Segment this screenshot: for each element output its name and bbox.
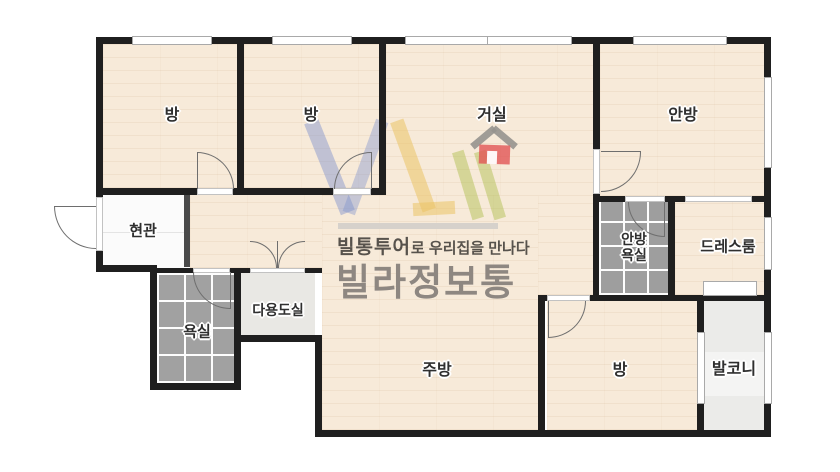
master-bedroom-label: 안방: [668, 107, 697, 125]
window-living: [405, 36, 572, 45]
utility-door-leaf: [277, 241, 278, 268]
front-door-arc: [54, 206, 96, 249]
logo-house-door: [487, 151, 497, 164]
bathroom-label: 욕실: [183, 323, 211, 340]
window-master-right: [764, 77, 772, 168]
wall-bedroom1-bedroom2: [237, 37, 244, 195]
bedroom2-door-leaf: [371, 152, 372, 189]
wall-bathroom-left: [150, 268, 157, 390]
wall-left-upper: [96, 37, 103, 195]
window-master-top: [633, 36, 727, 45]
opening-master-door: [593, 149, 600, 194]
entrance-label: 현관: [129, 222, 157, 239]
window-dressroom-balcony: [703, 281, 757, 296]
balcony-label: 발코니: [712, 361, 756, 379]
watermark-brand: 빌라정보통: [336, 252, 516, 306]
kitchen-floor: [322, 195, 538, 430]
floor-plan: 빌통투어로 우리집을 만나다 빌라정보통: [0, 0, 840, 472]
window-balcony-right: [764, 332, 772, 404]
wall-bathroom-right: [234, 268, 241, 390]
opening-utility-door: [250, 268, 305, 273]
master-bath-label: 안방 욕실: [621, 231, 647, 263]
bedroom2-label: 방: [304, 107, 319, 125]
bathroom-door-leaf: [230, 272, 231, 309]
wall-entrance-right: [184, 195, 190, 267]
living-room-label: 거실: [477, 107, 506, 125]
opening-bedroom2-door: [333, 188, 371, 195]
wall-bathroom-bottom: [150, 383, 241, 390]
dressroom-label: 드레스룸: [700, 238, 755, 255]
window-bedroom1: [132, 36, 212, 45]
kitchen-east-floor: [538, 196, 593, 295]
opening-dressroom: [685, 196, 752, 202]
window-dressroom-right: [764, 217, 772, 270]
kitchen-label: 주방: [422, 362, 451, 380]
wall-masterbath-dressroom: [668, 196, 675, 301]
logo-underline-bar: [338, 223, 498, 229]
wall-under-entrance: [96, 265, 157, 272]
wall-kitchen-left: [315, 335, 322, 437]
bedroom3-label: 방: [613, 362, 628, 380]
utility-room-label: 다용도실: [252, 302, 304, 318]
wall-bedroom2-living: [379, 37, 386, 195]
logo-yellow-l-foot: [413, 201, 456, 216]
bedroom1-label: 방: [165, 107, 180, 125]
wall-masterbath-left: [593, 196, 599, 301]
master-bath-label-line2: 욕실: [621, 247, 647, 263]
wall-utility-bottom: [234, 335, 322, 342]
wall-bedroom3-left: [538, 295, 545, 437]
window-bedroom2: [272, 36, 352, 45]
opening-front-door: [96, 197, 103, 251]
window-bedroom3-balcony: [697, 332, 705, 404]
opening-bedroom1-door: [197, 188, 233, 195]
master-bath-label-line1: 안방: [621, 231, 647, 247]
window-living-mullion: [487, 37, 488, 44]
